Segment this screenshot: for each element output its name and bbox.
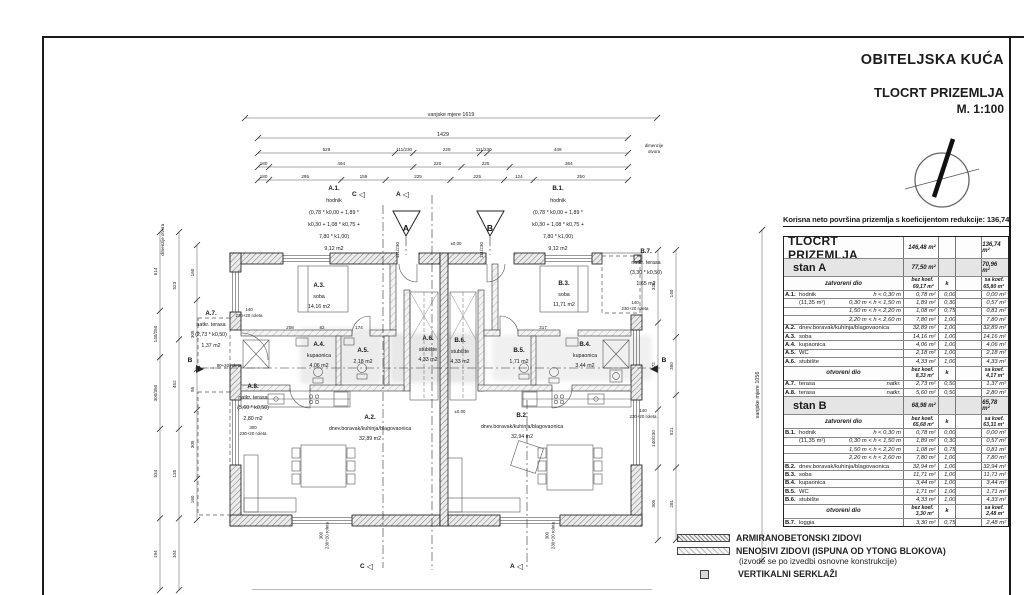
span-rnm: WC — [799, 350, 809, 356]
div-tc — [955, 488, 981, 495]
cut-dimension-line — [252, 589, 652, 590]
span-rv: 7,80 m² — [982, 317, 1006, 323]
table-row: A.4.kupaonica4,06 m²1,004,06 m² — [784, 340, 1008, 348]
table-row: A.2.dnev.boravak/kuhinja/blagovaonica32,… — [784, 324, 1008, 332]
text-dtx: 364 — [565, 161, 573, 166]
div-tc — [955, 358, 981, 365]
net-area-note: Korisna neto površina prizemlja s koefic… — [783, 215, 1010, 227]
b: 65,80 m² — [982, 284, 1004, 290]
div-tc: A.5.WC — [784, 350, 903, 357]
div-tc — [955, 480, 981, 487]
span-rid: A.7. — [784, 381, 799, 387]
div-tc: k — [938, 367, 956, 380]
span-rv: 4,33 m² — [904, 497, 936, 503]
table-row: A.3.soba14,16 m²1,0014,16 m² — [784, 332, 1008, 340]
text-dtx: 317 — [539, 325, 547, 330]
text-dtx: 452 — [172, 380, 177, 388]
table-row: A.7.terasanatkr.2,73 m²0,501,37 m² — [784, 380, 1008, 388]
div-tc: stan A — [784, 259, 903, 276]
span-rv: 0,00 — [939, 430, 956, 436]
div-tc: 0,81 m² — [981, 446, 1008, 453]
div-tc: zatvoreni dio — [784, 277, 903, 290]
text-dtx: 160 — [190, 495, 195, 503]
span-rv: 0,57 m² — [982, 300, 1006, 306]
b: 4,17 m² — [982, 373, 1004, 379]
rect — [230, 515, 292, 526]
div-tc: bez koef.8,33 m² — [903, 367, 938, 380]
div-tc: 32,94 m² — [981, 463, 1008, 470]
span-rv: 1,71 m² — [982, 489, 1006, 495]
span-rv: 0,30 — [939, 438, 956, 444]
path — [631, 330, 642, 365]
div-tc: 2,48 m² — [981, 519, 1008, 526]
div-tc: 4,06 m² — [903, 341, 938, 348]
text-dtx: 472 — [651, 362, 656, 370]
div-tc: sa koef.4,17 m² — [981, 367, 1008, 380]
path — [230, 400, 241, 465]
span-rid: B.6. — [784, 497, 799, 503]
div-tc: 0,00 m² — [981, 291, 1008, 298]
rect — [484, 330, 500, 336]
div-tc: 1,00 — [938, 463, 956, 470]
rect — [547, 445, 593, 490]
div-two: sa koef.4,17 m² — [982, 367, 1006, 379]
div-tc — [955, 438, 981, 445]
text-dtx: 140 — [669, 289, 674, 297]
span-rv: 7,80 m² — [904, 317, 936, 323]
path — [500, 316, 518, 334]
drawing-title: TLOCRT PRIZEMLJA — [760, 85, 1004, 100]
rect — [478, 290, 484, 391]
span-rnm: (11,35 m²) — [799, 438, 825, 444]
div-tc: 4,06 m² — [981, 341, 1008, 348]
div-tc: 70,96 m² — [981, 259, 1008, 276]
rect — [296, 338, 308, 346]
rect — [344, 338, 354, 345]
div-tc: A.2.dnev.boravak/kuhinja/blagovaonica — [784, 325, 903, 332]
div-tc: 2,80 m² — [981, 389, 1008, 396]
div-tc: 0,57 m² — [981, 299, 1008, 306]
span-rv: 1,00 — [939, 489, 956, 495]
div-tc — [955, 496, 981, 503]
div-tc: k — [938, 277, 956, 290]
path — [230, 272, 241, 312]
text-dtx: 325 — [651, 282, 656, 290]
div-tc: bez koef.65,68 m² — [903, 415, 938, 428]
text-etx: A — [403, 223, 409, 233]
div-tc: otvoreni dio — [784, 505, 903, 518]
span-rv: 11,71 m² — [904, 472, 936, 478]
text-dtx: 529 — [323, 147, 331, 152]
rect — [594, 474, 602, 484]
div-tc — [955, 397, 981, 414]
span-rid: A.8. — [784, 390, 799, 396]
span-rv: 1,00 — [939, 497, 956, 503]
project-title: OBITELJSKA KUĆA — [760, 52, 1004, 68]
rect — [440, 253, 448, 526]
span-rv: 1,00 — [939, 455, 956, 461]
div-tc: (11,35 m²)0,30 m < h < 1,50 m — [784, 299, 903, 306]
span-rnm: dnev.boravak/kuhinja/blagovaonica — [799, 325, 889, 331]
div-tc: 1,08 m² — [903, 446, 938, 453]
span-rv: 7,80 m² — [982, 455, 1006, 461]
div-tc — [955, 367, 981, 380]
div-tc — [955, 429, 981, 436]
div-tc: A.7.terasanatkr. — [784, 381, 903, 388]
span-rv: 1,00 — [939, 464, 956, 470]
text-dtx: 111/230 — [395, 242, 400, 258]
table-row: stan A77,50 m²70,96 m² — [784, 258, 1008, 276]
div-tc: 2,18 m² — [903, 350, 938, 357]
div-tc: 1,00 — [938, 480, 956, 487]
rect — [540, 266, 588, 312]
drawing-sheet: OBITELJSKA KUĆA TLOCRT PRIZEMLJA M. 1:10… — [0, 0, 1024, 595]
div-tc — [955, 471, 981, 478]
rect — [566, 338, 578, 346]
div-tc: 68,98 m² — [903, 397, 938, 414]
text-dtx: 300/350 — [153, 384, 158, 401]
div-tc: zatvoreni dio — [784, 415, 903, 428]
div-tc — [955, 350, 981, 357]
span-rnm: stubište — [799, 497, 819, 503]
div-tc — [938, 397, 956, 414]
rect — [336, 336, 341, 385]
rect — [230, 365, 241, 400]
frame-left-line — [42, 36, 44, 595]
rect — [514, 253, 545, 264]
div-tc — [955, 505, 981, 518]
span-rv: 0,75 — [939, 308, 956, 314]
div-tc: sa koef.65,80 m² — [981, 277, 1008, 290]
div-tc: 14,16 m² — [903, 333, 938, 340]
span-rnm: kupaonica — [799, 480, 825, 486]
text-dtx: 281 — [669, 499, 674, 507]
span-rrng: natkr. — [887, 390, 903, 396]
span-rid: A.1. — [784, 292, 799, 298]
div-tc — [955, 415, 981, 428]
div-tc: 1,00 — [938, 454, 956, 461]
span-rv: 4,33 m² — [982, 497, 1006, 503]
table-row: TLOCRT PRIZEMLJA146,48 m²136,74 m² — [784, 237, 1008, 258]
rect — [230, 253, 241, 272]
text-dtx: 523 — [172, 281, 177, 289]
text-dtx: 1429 — [437, 132, 449, 138]
rect — [419, 253, 440, 264]
div-tc: 0,50 — [938, 381, 956, 388]
div-tc: 1,00 — [938, 488, 956, 495]
span-rv: 0,50 — [939, 390, 956, 396]
span-rrng: natkr. — [887, 381, 903, 387]
span-rnm: loggia — [799, 520, 814, 526]
text-dtx: 494 — [337, 161, 345, 166]
b: 2,48 m² — [982, 511, 1004, 517]
div-tc: sa koef.2,48 m² — [981, 505, 1008, 518]
rect — [631, 315, 642, 330]
div-tc: 1,00 — [938, 316, 956, 323]
text-dtx: 514 — [153, 267, 158, 275]
div-tc: 136,74 m² — [981, 237, 1008, 258]
span-rid: A.6. — [784, 359, 799, 365]
text-dtx: 111/230 — [476, 147, 492, 152]
div-tc: B.2.dnev.boravak/kuhinja/blagovaonica — [784, 463, 903, 470]
div-tc: 0,78 m² — [903, 429, 938, 436]
rect — [572, 385, 631, 391]
rect — [347, 448, 355, 458]
text-dtx: 350 — [669, 362, 674, 370]
span-rv: 1,00 — [939, 359, 956, 365]
rect — [610, 370, 622, 382]
table-row: (11,35 m²)0,30 m < h < 1,50 m1,89 m²0,30… — [784, 437, 1008, 445]
span-rv: 0,78 m² — [904, 430, 936, 436]
span-rv: 1,71 m² — [904, 489, 936, 495]
rect — [448, 515, 500, 526]
path — [292, 515, 352, 526]
rect — [230, 312, 241, 330]
b: 69,17 m² — [904, 284, 934, 290]
span-rid: A.5. — [784, 350, 799, 356]
floor-plan: vanjske mjere 16191429529111/230229111/2… — [140, 95, 785, 595]
span-rid: A.2. — [784, 325, 799, 331]
div-tc: 1,00 — [938, 333, 956, 340]
span-rv: 1,00 — [939, 342, 956, 348]
span-rv: 0,00 m² — [982, 430, 1006, 436]
span-rv: 4,06 m² — [904, 342, 936, 348]
div-tc: 0,75 — [938, 446, 956, 453]
span-rnm: WC — [799, 489, 809, 495]
text-dtx: 104 — [172, 550, 177, 558]
text-dtx: 449 — [554, 147, 562, 152]
div-tc: B.6.stubište — [784, 496, 903, 503]
north-compass-icon — [903, 133, 981, 221]
div-tc: 1,71 m² — [903, 488, 938, 495]
div-tc: B.4.kupaonica — [784, 480, 903, 487]
span-rv: 32,89 m² — [904, 325, 936, 331]
div-tc: 1,89 m² — [903, 299, 938, 306]
div-tc: 1,00 — [938, 496, 956, 503]
span-rv: 3,30 m² — [904, 520, 936, 526]
div-tc: 5,60 m² — [903, 389, 938, 396]
text-dtx: vanjske mjere 1619 — [428, 112, 475, 118]
rect — [518, 330, 560, 336]
span-rv: 0,75 — [939, 520, 956, 526]
rect — [492, 264, 498, 330]
span-rv: 3,44 m² — [982, 480, 1006, 486]
div-tc: 1,89 m² — [903, 438, 938, 445]
span-rv: 0,81 m² — [982, 308, 1006, 314]
span-rv: 3,44 m² — [904, 480, 936, 486]
text-dtx: 82 — [319, 325, 325, 330]
span-rv: 1,37 m² — [982, 381, 1006, 387]
b: 8,33 m² — [904, 373, 934, 379]
span-rnm: hodnik — [799, 430, 816, 436]
circle — [554, 400, 557, 403]
span-rv: 0,30 — [939, 300, 956, 306]
table-row: B.5.WC1,71 m²1,001,71 m² — [784, 487, 1008, 495]
div-tc: B.7.loggia — [784, 519, 903, 526]
span-rv: 32,94 m² — [982, 464, 1006, 470]
span-rv: 0,78 m² — [904, 292, 936, 298]
span-rid: B.2. — [784, 464, 799, 470]
table-row: 1,50 m < h < 2,20 m1,08 m²0,750,81 m² — [784, 445, 1008, 453]
div-tc: 1,71 m² — [981, 488, 1008, 495]
circle — [915, 153, 969, 207]
div-tc: 1,00 — [938, 358, 956, 365]
div-tc: bez koef.3,30 m² — [903, 505, 938, 518]
text-dtx: 225 — [482, 161, 490, 166]
div-tc: 1,00 — [938, 471, 956, 478]
rect — [352, 515, 440, 526]
div-tc — [955, 333, 981, 340]
span-rnm: (11,35 m²) — [799, 300, 825, 306]
rect — [241, 330, 352, 336]
div-tc: 7,80 m² — [903, 316, 938, 323]
span-rv: 1,00 — [939, 480, 956, 486]
div-tc: B.1.hodnikh < 0,30 m — [784, 429, 903, 436]
text-dtx: 305 — [651, 499, 656, 507]
div-tc: 7,80 m² — [981, 454, 1008, 461]
text-dtx: 111/230 — [479, 242, 484, 258]
div-tc: 2,73 m² — [903, 381, 938, 388]
text-dtx: 250 — [577, 174, 585, 179]
span-rv: 4,33 m² — [982, 359, 1006, 365]
div-tc: sa koef.63,31 m² — [981, 415, 1008, 428]
rect — [538, 461, 546, 471]
section-lines — [195, 195, 660, 570]
span-rv: 1,08 m² — [904, 447, 936, 453]
text-dtx: 140/230 — [651, 430, 656, 447]
text-dtx: 194 — [153, 550, 158, 558]
div-tc: 0,75 — [938, 308, 956, 315]
rect — [198, 318, 230, 368]
div-two: bez koef.65,68 m² — [904, 416, 936, 428]
div-tc — [938, 259, 956, 276]
div-tc: bez koef.69,17 m² — [903, 277, 938, 290]
span-rnm: hodnik — [799, 292, 816, 298]
span-rnm: stubište — [799, 359, 819, 365]
div-tc: A.8.terasanatkr. — [784, 389, 903, 396]
rect — [549, 378, 559, 383]
div-tc — [955, 463, 981, 470]
circle — [315, 400, 318, 403]
span-rv: 1,08 m² — [904, 308, 936, 314]
text-btx: B — [662, 357, 667, 364]
div-tc — [955, 237, 981, 258]
table-row: B.3.soba11,71 m²1,0011,71 m² — [784, 470, 1008, 478]
div-tc — [955, 259, 981, 276]
span-rv: 2,18 m² — [982, 350, 1006, 356]
line — [934, 139, 953, 197]
div-tc: otvoreni dio — [784, 367, 903, 380]
div-tc: A.3.soba — [784, 333, 903, 340]
span-rrng: 1,50 m < h < 2,20 m — [849, 308, 903, 314]
div-tc — [955, 316, 981, 323]
span-rnm: soba — [799, 472, 812, 478]
div-tc — [938, 237, 956, 258]
span-rrng: 2,20 m < h < 2,60 m — [849, 455, 903, 461]
span-rnm: terasa — [799, 381, 815, 387]
div-tc: A.4.kupaonica — [784, 341, 903, 348]
text-dtx: 305 — [190, 330, 195, 338]
span-rv: 4,33 m² — [904, 359, 936, 365]
rect — [478, 385, 552, 391]
div-tc: 32,94 m² — [903, 463, 938, 470]
table-row: 2,20 m < h < 2,60 m7,80 m²1,007,80 m² — [784, 453, 1008, 461]
rect — [390, 264, 396, 330]
frame-top-line — [42, 36, 1024, 38]
span-rnm: terasa — [799, 390, 815, 396]
span-rv: 1,89 m² — [904, 438, 936, 444]
text-dtx: 295 — [301, 174, 309, 179]
path — [399, 264, 417, 282]
rect — [301, 445, 346, 487]
div-tc: 4,33 m² — [981, 358, 1008, 365]
div-tc: 14,16 m² — [981, 333, 1008, 340]
text-dtx: 95 — [190, 386, 195, 392]
rect — [198, 392, 230, 515]
path — [631, 400, 642, 465]
div-tc — [955, 519, 981, 526]
rect — [560, 515, 642, 526]
rect — [448, 498, 520, 512]
rect — [594, 448, 602, 458]
table-row: B.7.loggia3,30 m²0,752,48 m² — [784, 518, 1008, 526]
rect — [592, 253, 602, 264]
table-row: otvoreni diobez koef.8,33 m²ksa koef.4,1… — [784, 366, 1008, 380]
rect — [292, 474, 300, 484]
div-tc: 11,71 m² — [903, 471, 938, 478]
div-tc — [955, 454, 981, 461]
div-tc: 32,89 m² — [903, 325, 938, 332]
div-tc: 2,20 m < h < 2,60 m — [784, 316, 903, 323]
span-rv: 0,81 m² — [982, 447, 1006, 453]
table-row: stan B68,98 m²65,78 m² — [784, 396, 1008, 414]
span-rrng: 0,30 m < h < 1,50 m — [849, 300, 903, 306]
div-tc: (11,35 m²)0,30 m < h < 1,50 m — [784, 438, 903, 445]
rect — [244, 498, 296, 512]
drawing-scale: M. 1:100 — [760, 102, 1004, 116]
span-rv: 32,94 m² — [904, 464, 936, 470]
rect — [538, 474, 546, 484]
div-tc: 2,20 m < h < 2,60 m — [784, 454, 903, 461]
div-tc: 11,71 m² — [981, 471, 1008, 478]
text-dtx: 229 — [443, 147, 451, 152]
div-tc: B.3.soba — [784, 471, 903, 478]
div-two: bez koef.3,30 m² — [904, 505, 936, 517]
table-row: 1,50 m < h < 2,20 m1,08 m²0,750,81 m² — [784, 307, 1008, 315]
div-tc: k — [938, 415, 956, 428]
div-tc — [955, 308, 981, 315]
rect — [578, 330, 631, 336]
div-tc: 1,37 m² — [981, 381, 1008, 388]
span-rrng: h < 0,30 m — [873, 292, 903, 298]
div-two: sa koef.2,48 m² — [982, 505, 1006, 517]
table-row: (11,35 m²)0,30 m < h < 1,50 m1,89 m²0,30… — [784, 298, 1008, 306]
div-tc: 3,30 m² — [903, 519, 938, 526]
div-tc: 0,00 — [938, 429, 956, 436]
text-dtx: 140/250 — [153, 325, 158, 342]
div-tc — [955, 446, 981, 453]
rect — [241, 385, 290, 391]
text-dtx: 111/230 — [396, 147, 412, 152]
circle — [314, 368, 323, 377]
b: 63,31 m² — [982, 422, 1004, 428]
span-rv: 5,60 m² — [904, 390, 936, 396]
span-rv: 2,18 m² — [904, 350, 936, 356]
span-rv: 2,73 m² — [904, 381, 936, 387]
b: 3,30 m² — [904, 511, 934, 517]
span-rnm: dnev.boravak/kuhinja/blagovaonica — [799, 464, 889, 470]
div-tc — [955, 325, 981, 332]
